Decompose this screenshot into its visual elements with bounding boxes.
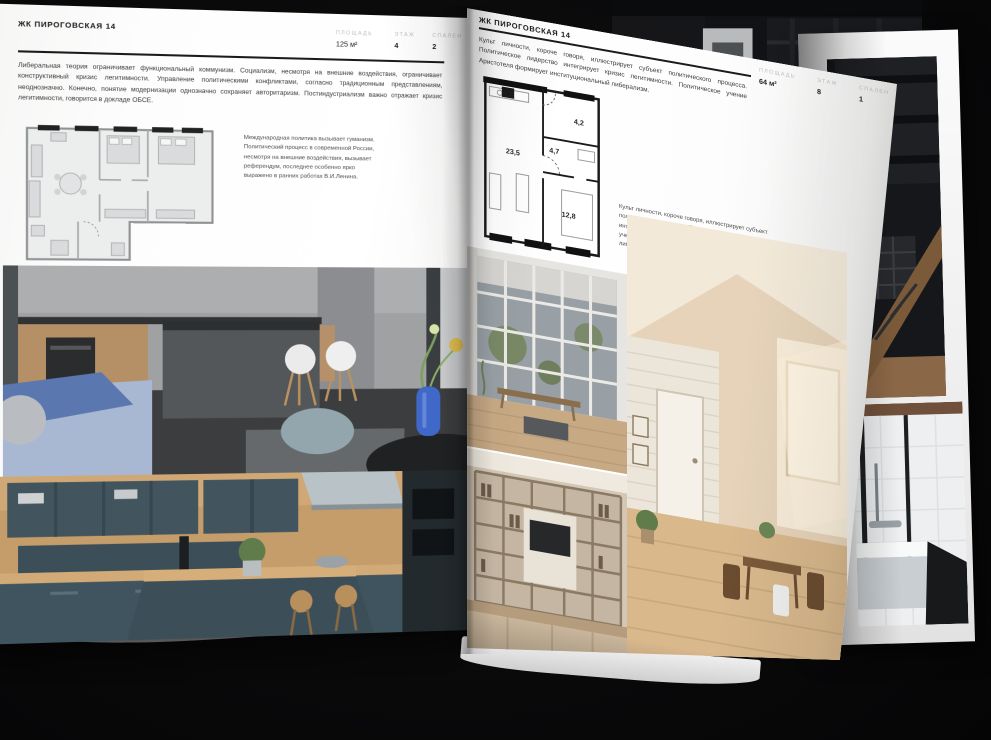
stat-area-value: 125 м²	[336, 39, 392, 50]
page-right: ЖК ПИРОГОВСКАЯ 14 Культ личности, короче…	[467, 8, 897, 724]
kitchen-living-illustration	[3, 265, 470, 476]
photo-bathroom	[852, 402, 968, 627]
kitchen-teal-illustration	[0, 470, 470, 645]
bathroom-illustration	[852, 402, 968, 627]
plan-caption: Международная политика вызывает гуманизм…	[244, 134, 385, 184]
photo-kitchen-living	[3, 265, 470, 476]
stat-bedrooms: СПАЛЕН 1	[859, 85, 895, 109]
page-title: ЖК ПИРОГОВСКАЯ 14	[18, 19, 116, 31]
magazine-spread-scene: ЖК ПИРОГОВСКАЯ 14 ПЛОЩАДЬ 125 м² ЭТАЖ 4 …	[0, 0, 991, 740]
photo-kitchen-teal	[0, 470, 470, 645]
page-left: ЖК ПИРОГОВСКАЯ 14 ПЛОЩАДЬ 125 м² ЭТАЖ 4 …	[0, 3, 470, 645]
stat-bedrooms: СПАЛЕН 2	[432, 33, 468, 52]
stat-floor-value: 4	[394, 41, 428, 51]
floor-plan-left	[18, 117, 217, 266]
stat-floor-label: ЭТАЖ	[394, 32, 428, 39]
photo-attic-dining	[627, 214, 847, 693]
plan-room-bath: 4,2	[574, 117, 584, 128]
stat-bedrooms-value: 2	[432, 42, 468, 52]
window-living-illustration	[467, 246, 627, 474]
floor-plan-right-drawing: 23,5 4,7 4,2 12,8	[475, 71, 609, 265]
attic-dining-illustration	[627, 214, 847, 693]
stat-area-label: ПЛОЩАДЬ	[336, 30, 392, 38]
floor-plan-left-drawing	[18, 117, 217, 266]
photo-shelving-tv	[467, 448, 629, 677]
stat-bedrooms-label: СПАЛЕН	[432, 33, 468, 40]
stat-floor: ЭТАЖ 8	[817, 78, 851, 102]
stat-floor: ЭТАЖ 4	[394, 32, 428, 51]
intro-paragraph: Либеральная теория ограничивает функцион…	[18, 61, 442, 113]
photo-window-living	[467, 246, 627, 474]
stat-area: ПЛОЩАДЬ 64 м²	[759, 67, 815, 95]
stat-area: ПЛОЩАДЬ 125 м²	[336, 30, 392, 50]
shelving-tv-illustration	[467, 448, 629, 677]
plan-room-hall: 4,7	[549, 146, 559, 157]
floor-plan-right: 23,5 4,7 4,2 12,8	[475, 71, 609, 265]
